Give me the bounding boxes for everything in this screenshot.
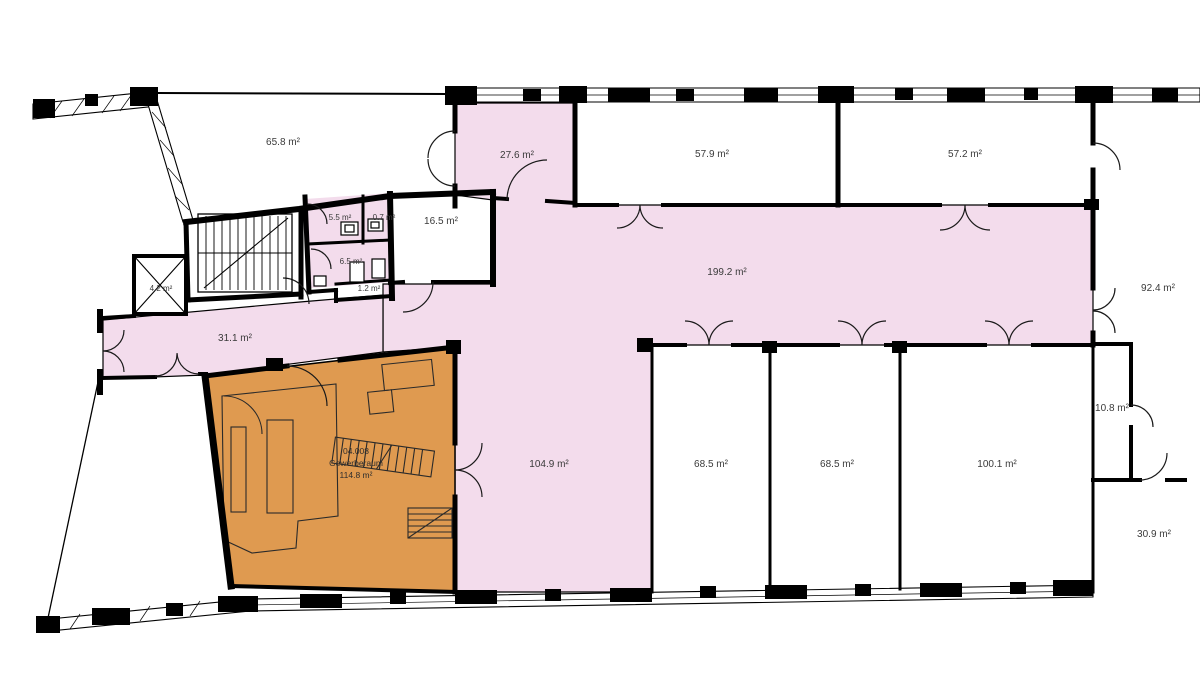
label-room-65-8: 65.8 m² [266, 137, 301, 148]
label-room-68-5-a: 68.5 m² [694, 459, 729, 470]
floor-plan: 65.8 m² 27.6 m² 57.9 m² 57.2 m² 199.2 m²… [0, 0, 1200, 675]
label-room-57-2: 57.2 m² [948, 149, 983, 160]
label-room-5-5: 5.5 m² [329, 213, 352, 222]
label-room-1-2: 1.2 m² [358, 284, 381, 293]
label-room-100-1: 100.1 m² [977, 459, 1017, 470]
label-room-27-6: 27.6 m² [500, 150, 535, 161]
label-room-31-1: 31.1 m² [218, 333, 253, 344]
unit-code: 04.008 [343, 446, 369, 456]
room-gewerberaum[interactable] [205, 347, 455, 592]
unit-area: 114.8 m² [340, 470, 373, 480]
label-room-16-5: 16.5 m² [424, 216, 459, 227]
unit-name: Gewerberaum [329, 458, 383, 468]
label-room-0-7: 0.7 m² [373, 213, 396, 222]
label-room-199-2: 199.2 m² [707, 267, 747, 278]
label-room-10-8: 10.8 m² [1095, 403, 1130, 414]
floor-plan-canvas: 65.8 m² 27.6 m² 57.9 m² 57.2 m² 199.2 m²… [0, 0, 1200, 675]
stairwell [198, 214, 292, 292]
label-room-92-4: 92.4 m² [1141, 283, 1176, 294]
room-circulation-main[interactable] [383, 103, 1093, 592]
label-room-68-5-b: 68.5 m² [820, 459, 855, 470]
highlighted-unit [205, 347, 455, 592]
label-room-104-9: 104.9 m² [529, 459, 569, 470]
label-room-6-5: 6.5 m² [340, 257, 363, 266]
label-room-4-2: 4.2 m² [150, 284, 173, 293]
label-room-57-9: 57.9 m² [695, 149, 730, 160]
label-room-30-9: 30.9 m² [1137, 529, 1172, 540]
